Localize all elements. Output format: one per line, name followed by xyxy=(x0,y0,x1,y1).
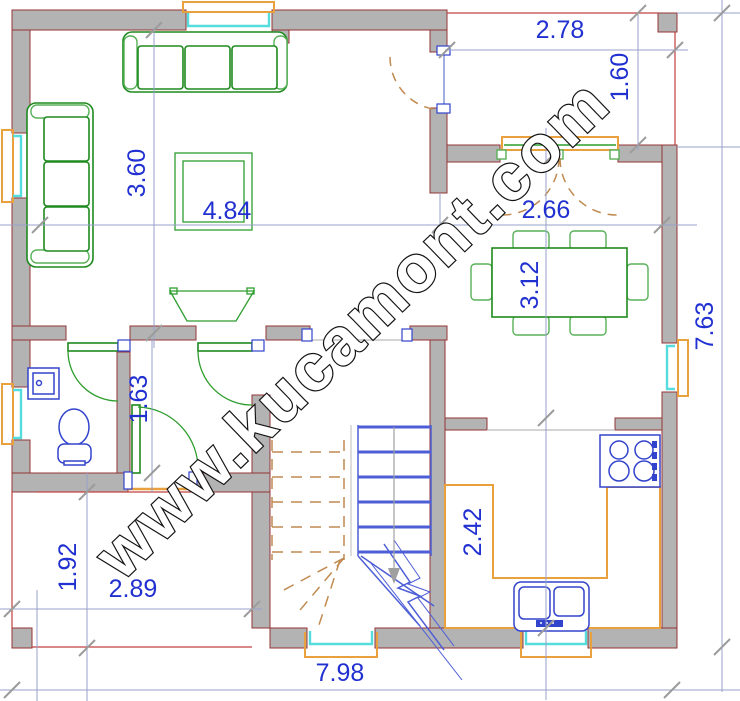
dim-living-height: 3.60 xyxy=(123,149,151,198)
dining-table xyxy=(492,248,627,317)
dim-bath-height: 1.63 xyxy=(125,375,153,424)
balcony-pillar xyxy=(658,13,677,32)
dining-right-window xyxy=(667,340,688,396)
dim-balcony-width: 2.78 xyxy=(536,16,585,44)
floor-plan: 2.78 1.60 3.60 4.84 2.66 3.12 7.63 1.63 … xyxy=(0,0,740,701)
porch-pillar xyxy=(12,628,32,648)
dim-porch-height: 1.92 xyxy=(54,543,82,592)
dim-dining-height: 3.12 xyxy=(516,261,544,310)
bathroom-sink xyxy=(28,368,59,399)
sofa-left xyxy=(27,103,93,267)
dim-living-width: 4.84 xyxy=(203,197,252,225)
dim-house-height: 7.63 xyxy=(691,302,719,351)
magazine-table xyxy=(170,288,254,321)
dim-kitchen-height: 2.42 xyxy=(459,508,487,557)
stair-treads-upper-dashed xyxy=(272,440,344,628)
toilet xyxy=(58,409,91,465)
kitchen-bottom-window xyxy=(521,631,591,657)
stove xyxy=(600,435,660,487)
dim-house-width: 7.98 xyxy=(316,659,365,687)
bathroom-left-window xyxy=(2,384,21,444)
living-top-window xyxy=(183,2,274,26)
stairwell-bottom-window xyxy=(305,631,377,657)
dim-balcony-depth: 1.60 xyxy=(606,53,634,102)
floor-plan-drawing: 2.78 1.60 3.60 4.84 2.66 3.12 7.63 1.63 … xyxy=(0,0,740,701)
bathroom-fixtures xyxy=(28,368,91,465)
sofa-top xyxy=(123,32,287,92)
living-left-window xyxy=(2,130,21,202)
stair-winders xyxy=(358,540,462,680)
dining-set xyxy=(471,231,648,335)
